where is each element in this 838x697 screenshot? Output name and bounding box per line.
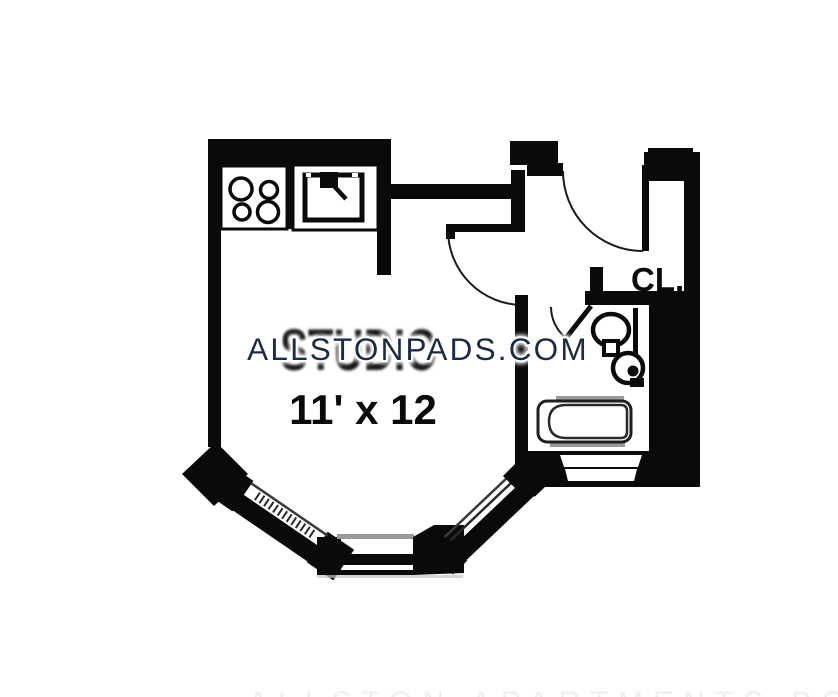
svg-text:CL.: CL. bbox=[631, 261, 684, 298]
svg-text:11' x 12: 11' x 12 bbox=[289, 386, 437, 433]
svg-text:ALLSTON APARTMENTS BOSTON: ALLSTON APARTMENTS BOSTON bbox=[248, 686, 838, 697]
svg-text:ALLSTONPADS.COM: ALLSTONPADS.COM bbox=[247, 331, 589, 367]
